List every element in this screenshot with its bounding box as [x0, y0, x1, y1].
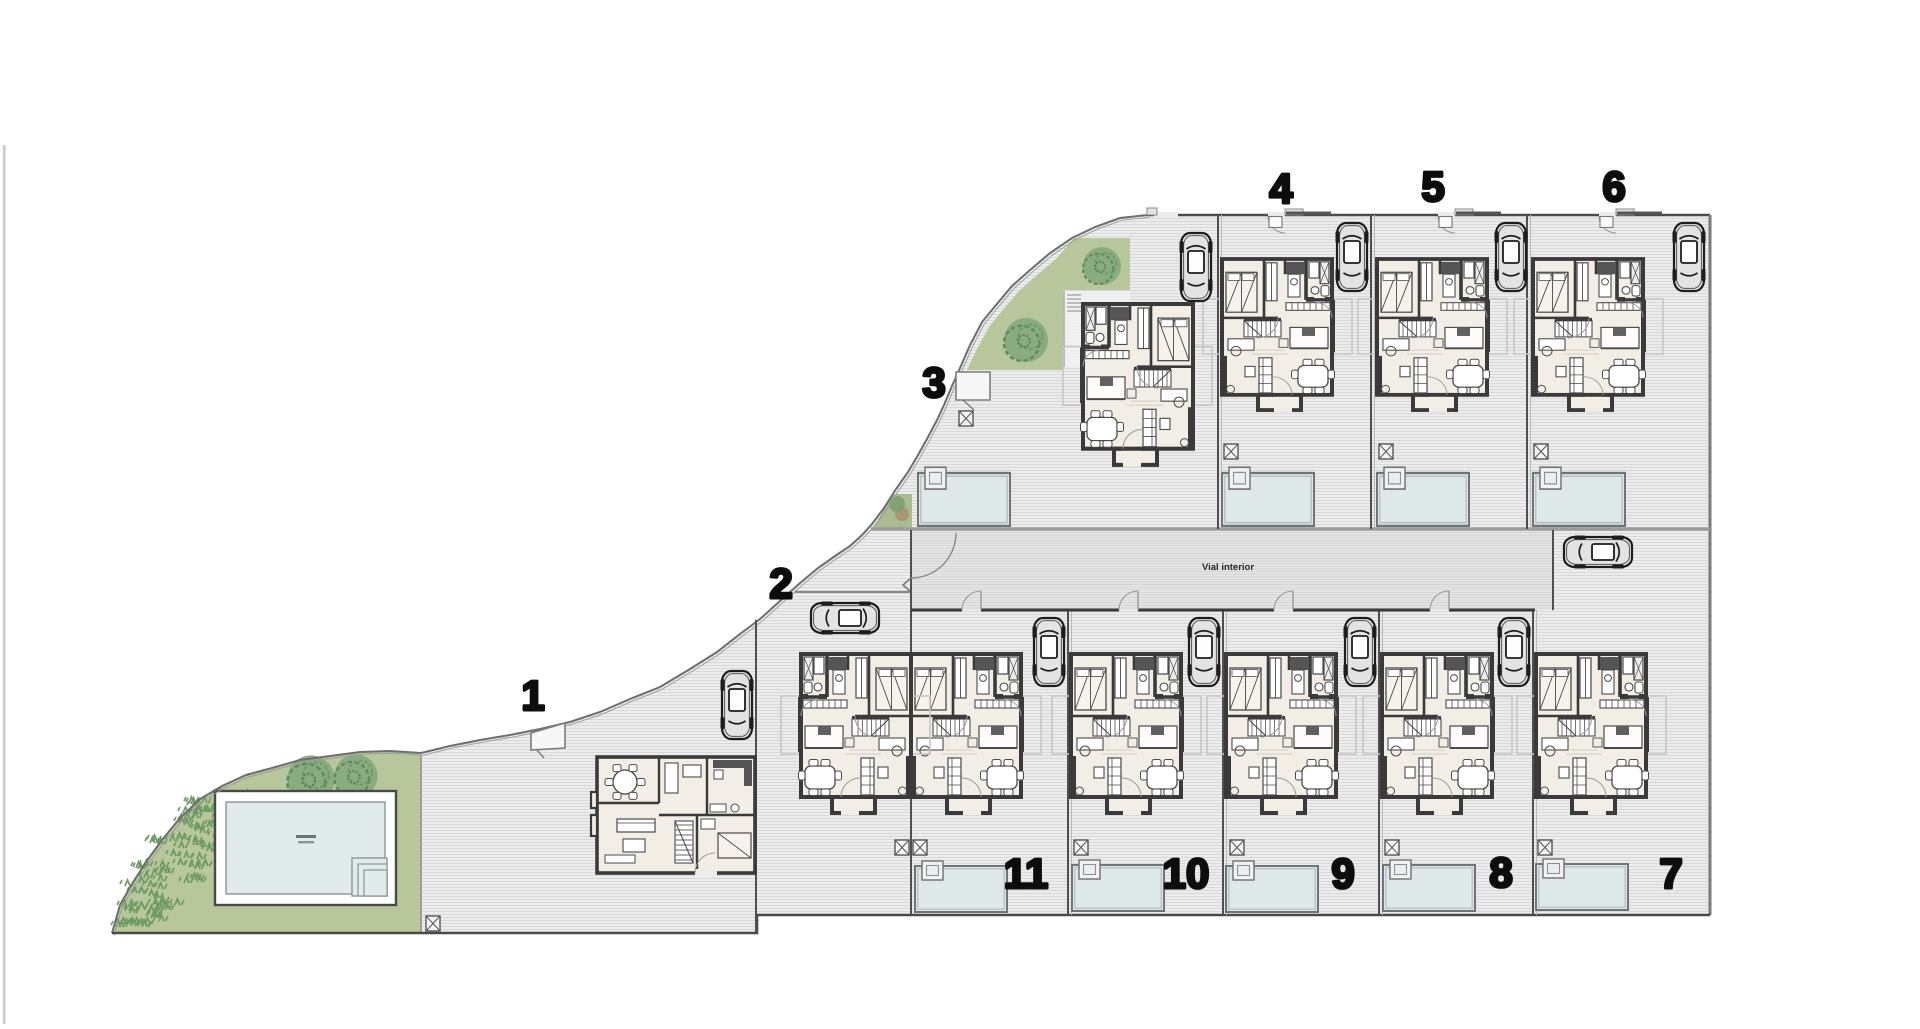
svg-text:4: 4	[1269, 165, 1293, 212]
svg-text:Vial interior: Vial interior	[1202, 562, 1254, 573]
svg-text:10: 10	[1163, 850, 1210, 897]
svg-text:1: 1	[521, 672, 544, 719]
svg-text:7: 7	[1659, 850, 1682, 897]
svg-text:6: 6	[1602, 163, 1625, 210]
svg-text:8: 8	[1489, 849, 1512, 896]
svg-text:9: 9	[1331, 850, 1354, 897]
svg-text:2: 2	[769, 560, 792, 607]
svg-text:3: 3	[922, 359, 945, 406]
svg-text:11: 11	[1004, 850, 1048, 897]
svg-text:5: 5	[1421, 163, 1444, 210]
